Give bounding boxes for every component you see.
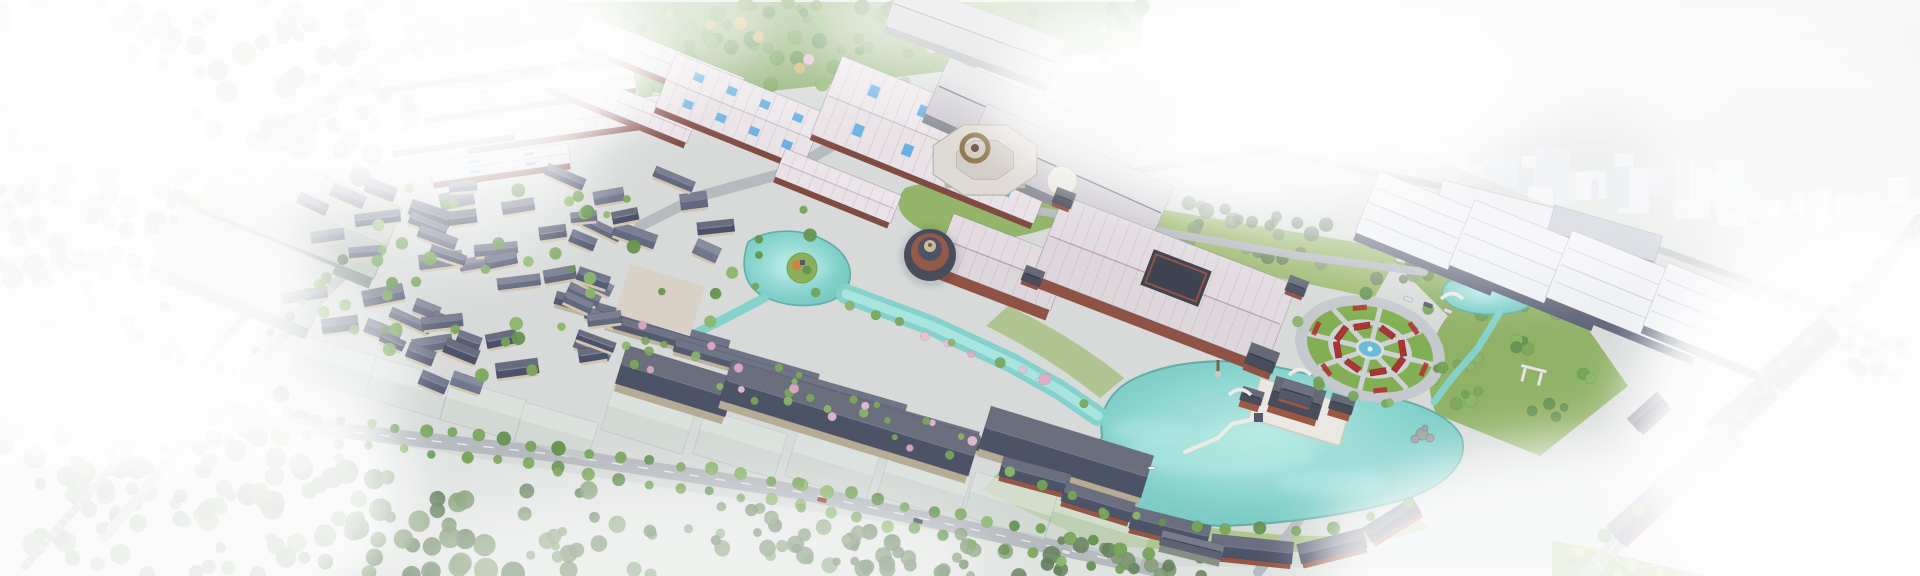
scene-root: [0, 0, 1920, 576]
architectural-aerial-rendering: [0, 0, 1920, 576]
fog-overlay: [0, 0, 1920, 576]
atmospheric-wash: [0, 0, 1920, 576]
scene-canvas: [0, 0, 1920, 576]
